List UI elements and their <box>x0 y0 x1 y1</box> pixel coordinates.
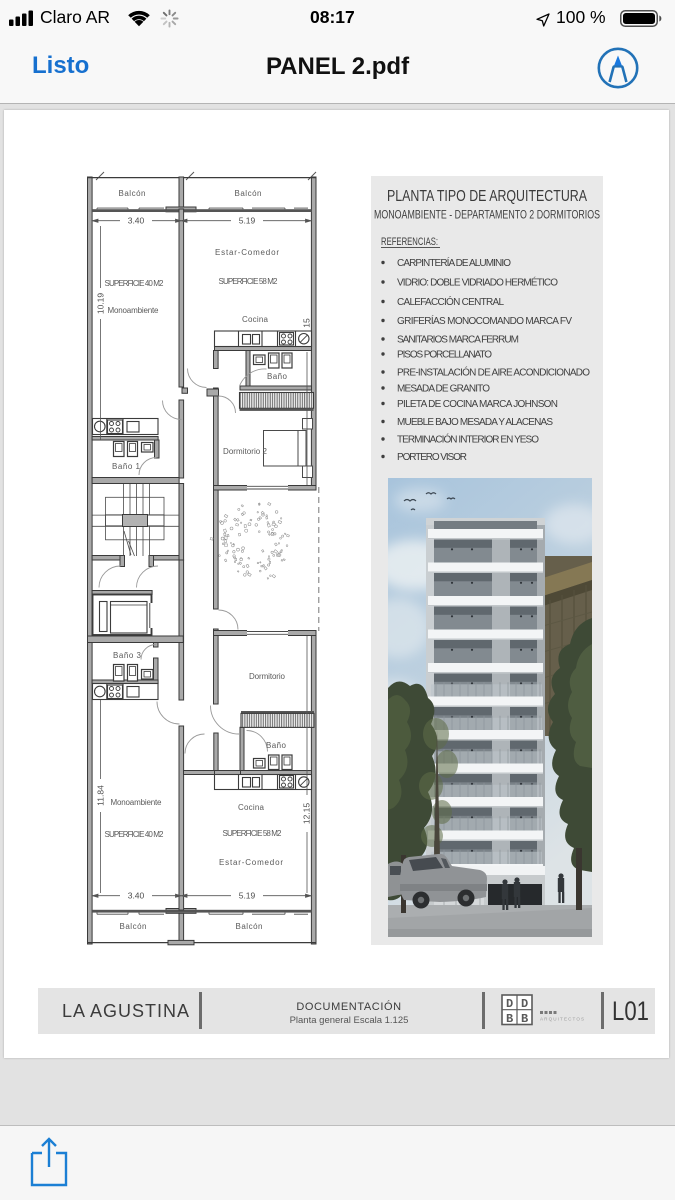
svg-text:MONOAMBIENTE - DEPARTAMENTO 2: MONOAMBIENTE - DEPARTAMENTO 2 DORMITORIO… <box>374 210 600 222</box>
svg-text:PILETA DE COCINA MARCA JOHNSON: PILETA DE COCINA MARCA JOHNSON <box>397 399 558 410</box>
svg-text:15: 15 <box>302 318 312 328</box>
svg-text:B: B <box>506 1012 513 1026</box>
svg-text:VIDRIO: DOBLE VIDRIADO HERMÉTI: VIDRIO: DOBLE VIDRIADO HERMÉTICO <box>397 276 558 289</box>
svg-text:SUPERFICIE 58 M2: SUPERFICIE 58 M2 <box>223 829 283 838</box>
svg-text:Baño: Baño <box>266 741 287 750</box>
svg-text:PLANTA TIPO DE ARQUITECTURA: PLANTA TIPO DE ARQUITECTURA <box>387 188 587 205</box>
svg-text:Baño: Baño <box>267 372 288 381</box>
svg-text:Baño 1: Baño 1 <box>112 462 141 471</box>
svg-text:SUPERFICIE 40 M2: SUPERFICIE 40 M2 <box>105 830 165 839</box>
svg-text:CARPINTERÍA DE ALUMINIO: CARPINTERÍA DE ALUMINIO <box>397 256 511 269</box>
svg-text:SUPERFICIE 58 M2: SUPERFICIE 58 M2 <box>219 277 279 286</box>
svg-text:Balcón: Balcón <box>235 189 262 198</box>
svg-text:PRE-INSTALACIÓN DE AIRE ACONDI: PRE-INSTALACIÓN DE AIRE ACONDICIONADO <box>397 366 590 379</box>
svg-text:PISOS PORCELLANATO: PISOS PORCELLANATO <box>397 350 492 361</box>
svg-text:REFERENCIAS:: REFERENCIAS: <box>381 236 438 248</box>
svg-text:Monoambiente: Monoambiente <box>108 306 160 315</box>
svg-text:Estar-Comedor: Estar-Comedor <box>215 248 279 257</box>
svg-text:SUPERFICIE 40 M2: SUPERFICIE 40 M2 <box>105 279 165 288</box>
svg-text:B: B <box>521 1012 528 1026</box>
svg-text:Dormitorio: Dormitorio <box>249 672 286 681</box>
svg-text:Balcón: Balcón <box>120 922 147 931</box>
svg-text:D: D <box>506 997 513 1011</box>
svg-text:MUEBLE BAJO MESADA Y ALACENAS: MUEBLE BAJO MESADA Y ALACENAS <box>397 417 553 428</box>
svg-text:3.40: 3.40 <box>128 216 145 226</box>
svg-text:D: D <box>521 997 528 1011</box>
svg-text:3.40: 3.40 <box>128 891 145 901</box>
svg-text:Cocina: Cocina <box>238 803 265 812</box>
svg-text:CALEFACCIÓN CENTRAL: CALEFACCIÓN CENTRAL <box>397 295 504 308</box>
svg-text:TERMINACIÓN INTERIOR EN YESO: TERMINACIÓN INTERIOR EN YESO <box>397 433 539 446</box>
svg-text:Estar-Comedor: Estar-Comedor <box>219 858 283 867</box>
svg-text:SANITARIOS MARCA FERRUM: SANITARIOS MARCA FERRUM <box>397 335 519 346</box>
svg-text:ARQUITECTOS: ARQUITECTOS <box>540 1017 585 1022</box>
svg-text:Balcón: Balcón <box>236 922 263 931</box>
svg-text:GRIFERÍAS MONOCOMANDO MARCA FV: GRIFERÍAS MONOCOMANDO MARCA FV <box>397 314 572 327</box>
svg-text:10.19: 10.19 <box>96 293 106 315</box>
svg-text:5.19: 5.19 <box>239 891 256 901</box>
svg-text:MESADA DE GRANITO: MESADA DE GRANITO <box>397 384 490 395</box>
svg-text:Cocina: Cocina <box>242 315 269 324</box>
svg-text:12.15: 12.15 <box>302 803 312 825</box>
svg-text:5.19: 5.19 <box>239 216 256 226</box>
svg-text:11.84: 11.84 <box>96 785 106 806</box>
svg-text:Monoambiente: Monoambiente <box>111 798 163 807</box>
svg-text:Baño 3: Baño 3 <box>113 651 142 660</box>
svg-text:Balcón: Balcón <box>119 189 146 198</box>
svg-text:Dormitorio 2: Dormitorio 2 <box>223 447 268 456</box>
svg-text:PORTERO VISOR: PORTERO VISOR <box>397 452 467 463</box>
